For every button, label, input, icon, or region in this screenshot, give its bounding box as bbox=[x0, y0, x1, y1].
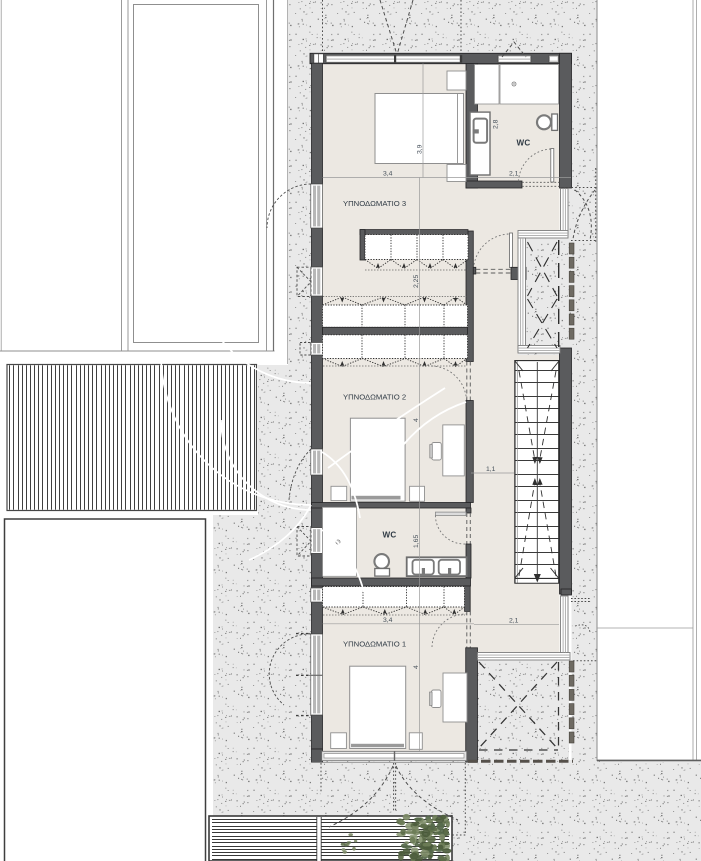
svg-text:4: 4 bbox=[413, 665, 420, 669]
svg-text:3,4: 3,4 bbox=[383, 171, 393, 178]
svg-text:2,8: 2,8 bbox=[493, 119, 500, 129]
svg-text:WC: WC bbox=[383, 531, 397, 540]
svg-text:4: 4 bbox=[413, 418, 420, 422]
svg-text:ΥΠΝΟΔΩΜΑΤΙΟ 2: ΥΠΝΟΔΩΜΑΤΙΟ 2 bbox=[343, 393, 406, 402]
svg-text:ΥΠΝΟΔΩΜΑΤΙΟ 1: ΥΠΝΟΔΩΜΑΤΙΟ 1 bbox=[343, 640, 406, 649]
svg-text:2,25: 2,25 bbox=[413, 275, 420, 288]
svg-text:2,1: 2,1 bbox=[509, 618, 519, 625]
svg-text:1,65: 1,65 bbox=[413, 535, 420, 548]
svg-text:1,1: 1,1 bbox=[486, 466, 496, 473]
svg-text:2,1: 2,1 bbox=[509, 171, 519, 178]
svg-text:3,9: 3,9 bbox=[417, 144, 424, 154]
svg-text:3,4: 3,4 bbox=[383, 617, 393, 624]
svg-text:WC: WC bbox=[517, 139, 531, 148]
svg-text:ΥΠΝΟΔΩΜΑΤΙΟ 3: ΥΠΝΟΔΩΜΑΤΙΟ 3 bbox=[343, 199, 406, 208]
